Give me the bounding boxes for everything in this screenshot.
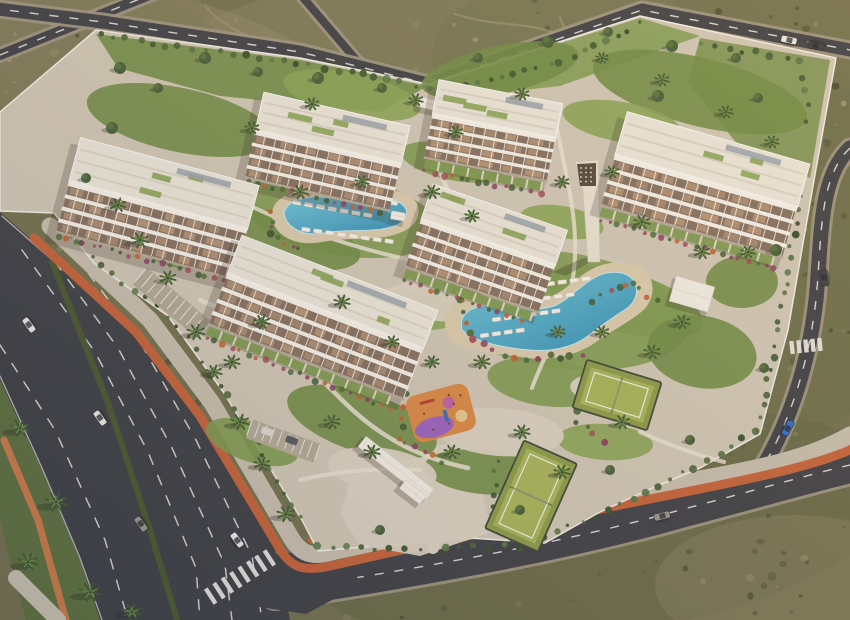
entrance-driveway bbox=[433, 512, 438, 548]
aerial-render-residential-complex bbox=[0, 0, 850, 620]
tower-logo-panel bbox=[577, 163, 596, 186]
aerial-render-stage bbox=[0, 0, 850, 620]
